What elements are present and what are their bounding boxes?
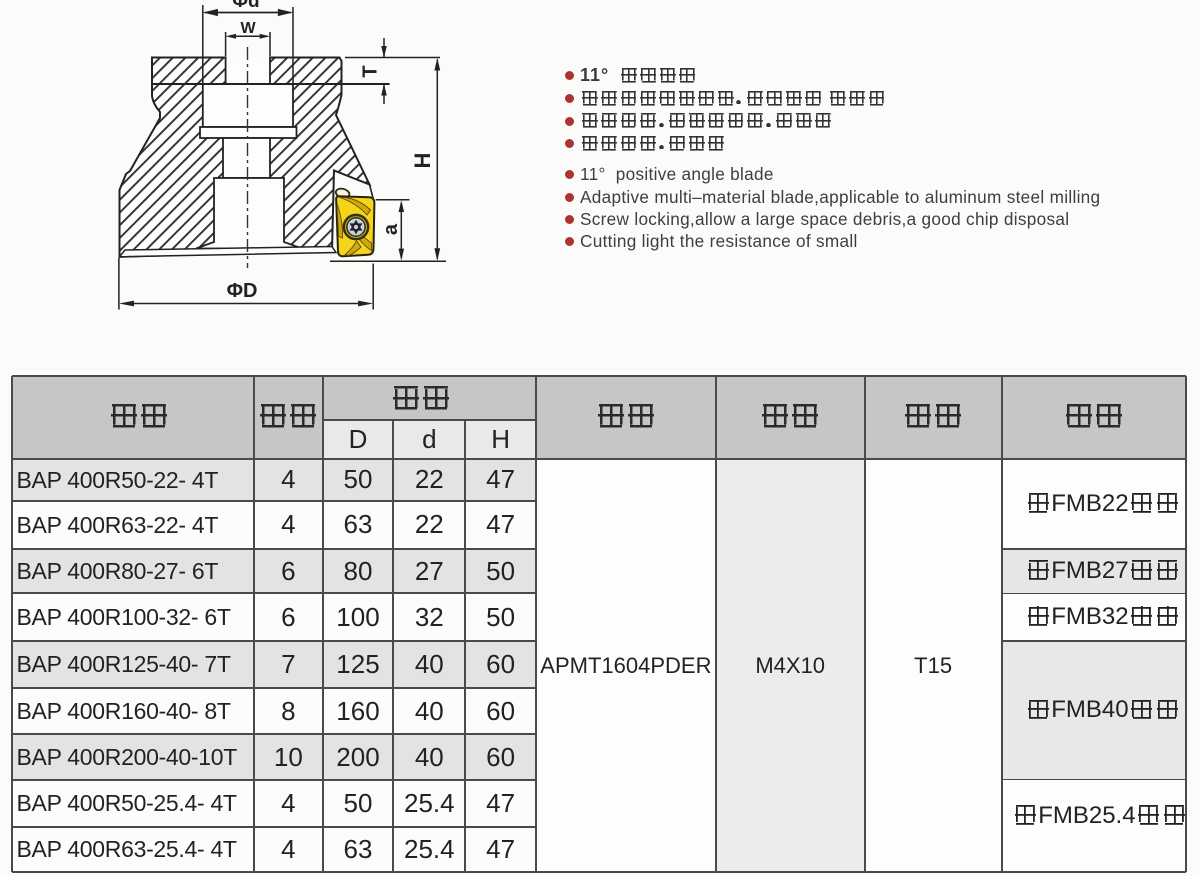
svg-text:a: a [380,223,402,235]
svg-text:ΦD: ΦD [227,280,258,302]
svg-text:T: T [359,65,381,77]
svg-text:H: H [410,153,435,169]
svg-text:Φd: Φd [232,0,259,12]
svg-text:W: W [240,20,256,37]
